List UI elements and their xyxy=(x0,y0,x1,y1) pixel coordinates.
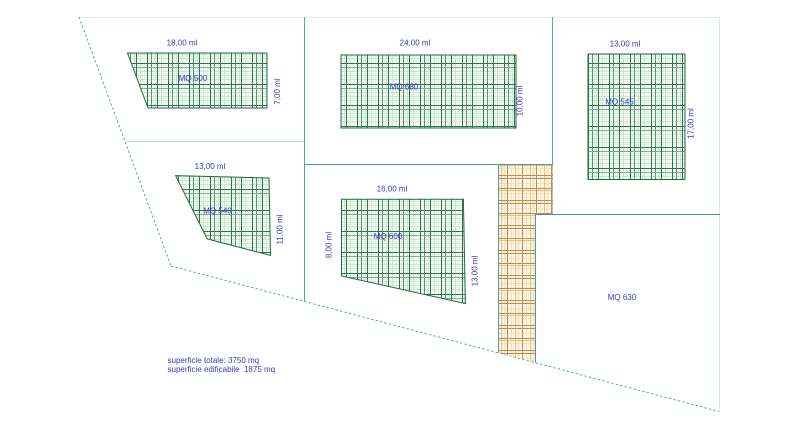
svg-text:MQ 600: MQ 600 xyxy=(374,232,403,241)
svg-text:superficie totale: 3750 mq: superficie totale: 3750 mq xyxy=(168,356,260,365)
svg-text:13,00 ml: 13,00 ml xyxy=(471,255,480,286)
svg-text:10,00 ml: 10,00 ml xyxy=(516,85,525,116)
svg-text:8,00 ml: 8,00 ml xyxy=(325,232,334,258)
svg-text:16,00 ml: 16,00 ml xyxy=(377,185,408,194)
svg-text:MQ 545: MQ 545 xyxy=(605,98,634,107)
svg-text:17,00 ml: 17,00 ml xyxy=(687,108,696,139)
svg-text:13,00 ml: 13,00 ml xyxy=(195,162,226,171)
svg-text:11,00 ml: 11,00 ml xyxy=(276,214,285,244)
svg-text:13,00 ml: 13,00 ml xyxy=(610,40,641,49)
svg-text:MQ 500: MQ 500 xyxy=(179,74,208,83)
svg-text:MQ 540: MQ 540 xyxy=(203,207,232,216)
svg-text:superficie edificabile 1875 m: superficie edificabile 1875 mq xyxy=(168,365,276,374)
svg-text:18,00 ml: 18,00 ml xyxy=(167,39,198,48)
svg-text:24,00 ml: 24,00 ml xyxy=(400,39,431,48)
svg-text:MQ 680: MQ 680 xyxy=(390,83,419,92)
svg-text:MQ 630: MQ 630 xyxy=(608,293,637,302)
svg-text:7,00 ml: 7,00 ml xyxy=(273,78,282,104)
